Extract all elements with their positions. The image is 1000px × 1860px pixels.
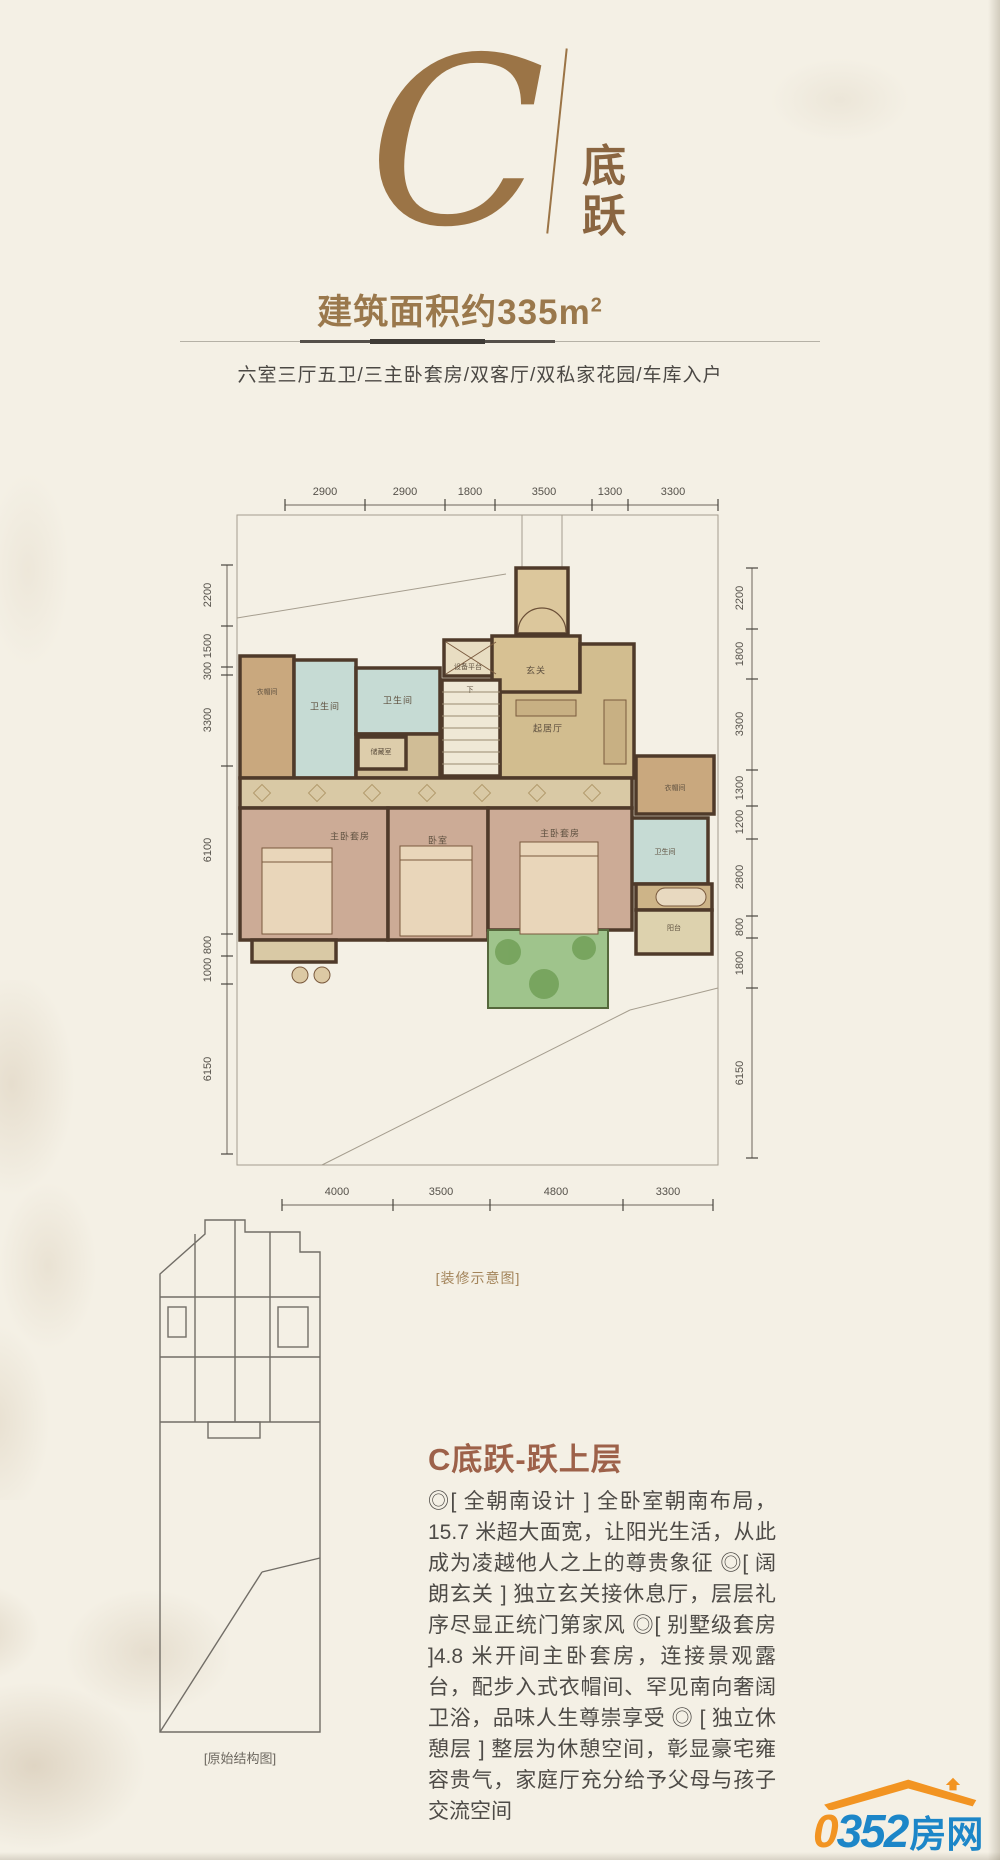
dim-label: 300 bbox=[202, 662, 214, 680]
dim-label: 2200 bbox=[202, 583, 214, 607]
room-label-storage: 储藏室 bbox=[371, 747, 392, 757]
dim-label: 1300 bbox=[734, 776, 746, 800]
room-label-cloakroom-right: 衣帽间 bbox=[665, 783, 686, 793]
dim-label: 2900 bbox=[393, 486, 417, 498]
logo-zero: 0 bbox=[813, 1804, 837, 1858]
dim-label: 3500 bbox=[532, 486, 556, 498]
room-label-bedroom: 卧室 bbox=[428, 834, 448, 847]
logo-text: 0352房网 bbox=[813, 1804, 993, 1858]
logo-number: 352 bbox=[837, 1804, 908, 1858]
structure-sketch bbox=[150, 1212, 330, 1742]
room-label-cloakroom-left: 衣帽间 bbox=[257, 687, 278, 697]
dim-label: 1800 bbox=[734, 951, 746, 975]
foliage-watermark-mid-left bbox=[0, 420, 100, 720]
dim-label: 2800 bbox=[734, 865, 746, 889]
room-label-master-suite-left: 主卧套房 bbox=[330, 830, 370, 843]
room-label-master-suite-right: 主卧套房 bbox=[540, 827, 580, 840]
scan-edge-right bbox=[988, 0, 1000, 1860]
dim-label: 1800 bbox=[458, 486, 482, 498]
room-label-equipment-platform: 设备平台 bbox=[454, 662, 482, 672]
plan-caption: [装修示意图] bbox=[436, 1268, 521, 1288]
room-label-stairs-down: 下 bbox=[467, 685, 474, 695]
dim-label: 1200 bbox=[734, 810, 746, 834]
features-text: 六室三厅五卫/三主卧套房/双客厅/双私家花园/车库入户 bbox=[150, 360, 810, 387]
dim-label: 2900 bbox=[313, 486, 337, 498]
dim-label: 2200 bbox=[734, 586, 746, 610]
floorplan-drawing bbox=[190, 460, 770, 1230]
dim-label: 6150 bbox=[202, 1057, 214, 1081]
dim-label: 4800 bbox=[544, 1186, 568, 1198]
dim-label: 800 bbox=[734, 918, 746, 936]
dim-label: 1300 bbox=[598, 486, 622, 498]
dim-label: 1000 bbox=[202, 958, 214, 982]
header-divider bbox=[180, 341, 820, 342]
plan-letter: C bbox=[352, 28, 562, 258]
area-sup: 2 bbox=[591, 294, 603, 316]
dim-label: 6150 bbox=[734, 1061, 746, 1085]
dim-label: 800 bbox=[202, 936, 214, 954]
dim-label: 1500 bbox=[202, 634, 214, 658]
structure-caption: [原始结构图] bbox=[160, 1748, 320, 1767]
dim-label: 3500 bbox=[429, 1186, 453, 1198]
room-label-bathroom-2: 卫生间 bbox=[383, 694, 413, 707]
dim-label: 6100 bbox=[202, 838, 214, 862]
detail-heading: C底跃-跃上层 bbox=[428, 1434, 623, 1479]
foliage-watermark-left bbox=[0, 980, 120, 1500]
detail-body: ◎[ 全朝南设计 ] 全卧室朝南布局，15.7 米超大面宽，让阳光生活，从此成为… bbox=[428, 1486, 776, 1827]
smudge-watermark-top-right bbox=[740, 30, 940, 170]
plan-tag-char-2: 跃 bbox=[582, 191, 626, 242]
plan-tag-char-1: 底 bbox=[582, 141, 626, 192]
area-value: 建筑面积约335m bbox=[317, 293, 591, 332]
area-text: 建筑面积约335m2 bbox=[130, 284, 790, 335]
dim-label: 1800 bbox=[734, 642, 746, 666]
room-label-foyer: 玄关 bbox=[526, 664, 546, 677]
logo-cn-text: 房网 bbox=[909, 1804, 983, 1858]
room-label-bathroom-3: 卫生间 bbox=[655, 847, 676, 857]
site-logo: 0352房网 www.0352fang.com bbox=[813, 1776, 993, 1860]
dim-label: 4000 bbox=[325, 1186, 349, 1198]
dim-label: 3300 bbox=[656, 1186, 680, 1198]
scan-edge-bottom bbox=[0, 1852, 1000, 1860]
room-label-bathroom-1: 卫生间 bbox=[310, 700, 340, 713]
dim-label: 3300 bbox=[661, 486, 685, 498]
room-label-living: 起居厅 bbox=[533, 722, 563, 735]
dim-label: 3300 bbox=[202, 708, 214, 732]
plan-tag: 底跃 bbox=[578, 142, 630, 242]
room-label-balcony: 阳台 bbox=[667, 923, 681, 933]
brochure-page: C 底跃 建筑面积约335m2 六室三厅五卫/三主卧套房/双客厅/双私家花园/车… bbox=[0, 0, 1000, 1860]
dim-label: 3300 bbox=[734, 712, 746, 736]
